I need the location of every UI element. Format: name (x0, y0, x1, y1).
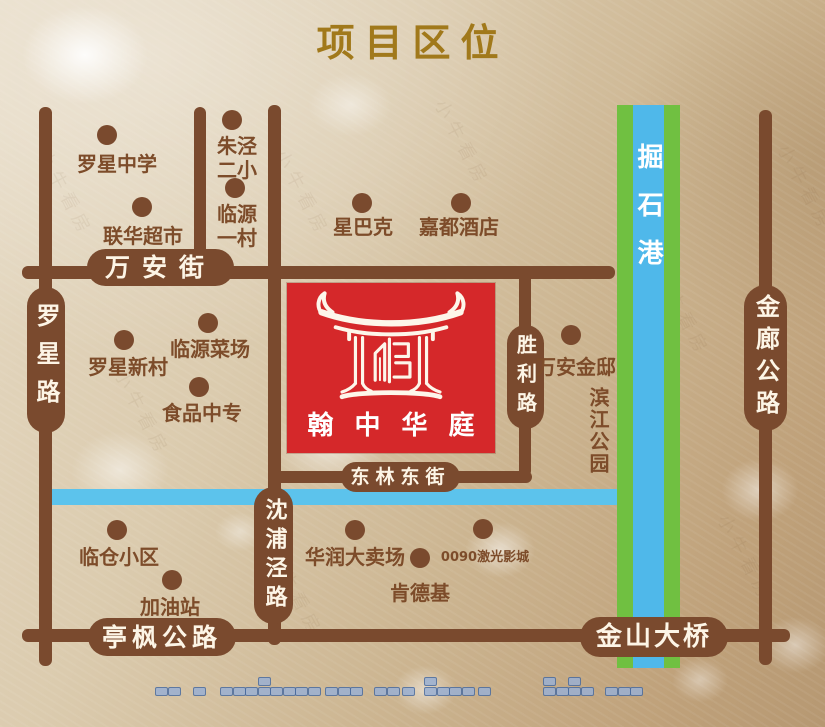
bottom-dash-raised (258, 677, 271, 686)
poi-label-food-vocational-school: 食品中专 (162, 401, 242, 425)
road-label-donglin-east-street[interactable]: 东林东街 (341, 462, 460, 492)
bottom-dash (258, 687, 271, 696)
bottom-dash (155, 687, 168, 696)
river-name-label: 掘石港 (630, 143, 667, 287)
bottom-dash (437, 687, 450, 696)
poi-dot-gas-station[interactable] (162, 570, 182, 590)
road-label-luoxing-road[interactable]: 罗星路 (27, 287, 65, 433)
poi-dot-lianhua-supermarket[interactable] (132, 197, 152, 217)
poi-dot-linyuan-village-1[interactable] (225, 178, 245, 198)
bottom-dash (233, 687, 246, 696)
bottom-dash (245, 687, 258, 696)
area-label-binjiang-park: 滨江公园 (586, 387, 610, 475)
road-label-shenpujing-road[interactable]: 沈浦泾路 (254, 487, 293, 624)
poi-dot-lincang-residence[interactable] (107, 520, 127, 540)
poi-label-linyuan-market: 临源菜场 (170, 337, 250, 361)
poi-label-huarun-hypermarket: 华润大卖场 (305, 545, 405, 569)
poi-dot-jiadu-hotel[interactable] (451, 193, 471, 213)
poi-label-zhujing-no2-primary: 朱泾 二小 (217, 134, 257, 182)
poi-label-luoxing-new-village: 罗星新村 (88, 355, 168, 379)
poi-dot-luoxing-new-village[interactable] (114, 330, 134, 350)
map-area: 翰中华庭 小牛看房小牛看房小牛看房小牛看房小牛看房小牛看房小牛看房小牛看房掘石港… (0, 0, 825, 727)
bottom-dash (462, 687, 475, 696)
poi-label-lianhua-supermarket: 联华超市 (103, 224, 183, 248)
poi-label-linyuan-village-1: 临源 一村 (217, 202, 257, 250)
poi-label-starbucks: 星巴克 (333, 215, 393, 239)
poi-dot-luoxing-middle-school[interactable] (97, 125, 117, 145)
bottom-dash (325, 687, 338, 696)
bottom-dash (295, 687, 308, 696)
poi-label-wanan-jindi: 万安金邸 (536, 355, 616, 379)
poi-dot-wanan-jindi[interactable] (561, 325, 581, 345)
poi-label-gas-station: 加油站 (140, 595, 200, 619)
poi-label-jiadu-hotel: 嘉都酒店 (419, 215, 499, 239)
road-label-wanan-street[interactable]: 万安街 (87, 249, 234, 286)
project-location-map: 项目区位 翰中华庭 小牛看房小牛看房小牛看房小牛看房小牛看房小牛看房小牛看房小牛… (0, 0, 825, 727)
bottom-dash (478, 687, 491, 696)
bottom-dash (387, 687, 400, 696)
river-water: 掘石港 (633, 105, 664, 668)
poi-label-lincang-residence: 临仓小区 (79, 545, 159, 569)
bottom-dash (338, 687, 351, 696)
project-marker[interactable]: 翰中华庭 (287, 283, 495, 453)
page-title: 项目区位 (0, 12, 825, 67)
road-label-jinlang-highway[interactable]: 金廊公路 (744, 285, 787, 431)
watermark-text: 小牛看房 (772, 140, 825, 237)
project-logo-gate-icon (312, 291, 470, 403)
canal-line (45, 489, 617, 505)
poi-dot-linyuan-market[interactable] (198, 313, 218, 333)
poi-dot-huarun-hypermarket[interactable] (345, 520, 365, 540)
bottom-dash (308, 687, 321, 696)
bottom-dash (618, 687, 631, 696)
poi-dot-zhujing-no2-primary[interactable] (222, 110, 242, 130)
poi-label-luoxing-middle-school: 罗星中学 (77, 152, 157, 176)
bottom-dash (424, 687, 437, 696)
bottom-dash-raised (543, 677, 556, 686)
poi-label-kfc: 肯德基 (390, 581, 450, 605)
bottom-dash (270, 687, 283, 696)
poi-dot-food-vocational-school[interactable] (189, 377, 209, 397)
bottom-dash (630, 687, 643, 696)
bottom-dash (402, 687, 415, 696)
watermark-text: 小牛看房 (429, 95, 497, 192)
bottom-dash-raised (424, 677, 437, 686)
bottom-dash (350, 687, 363, 696)
bottom-dash-raised (568, 677, 581, 686)
bottom-dash (168, 687, 181, 696)
poi-label-0090-laser-cinema: 0090激光影城 (441, 550, 529, 566)
bottom-dash (220, 687, 233, 696)
poi-dot-starbucks[interactable] (352, 193, 372, 213)
poi-dot-0090-laser-cinema[interactable] (473, 519, 493, 539)
bottom-dash (193, 687, 206, 696)
bottom-dash (374, 687, 387, 696)
road-label-jinshan-bridge[interactable]: 金山大桥 (580, 617, 728, 657)
poi-dot-kfc[interactable] (410, 548, 430, 568)
bottom-dash (556, 687, 569, 696)
bottom-dash (581, 687, 594, 696)
bottom-dash (543, 687, 556, 696)
bottom-dash (568, 687, 581, 696)
project-name: 翰中华庭 (307, 405, 495, 442)
bottom-dash (605, 687, 618, 696)
bottom-dash (449, 687, 462, 696)
bottom-dash (283, 687, 296, 696)
road-label-tingfeng-highway[interactable]: 亭枫公路 (88, 618, 236, 656)
river-jueshigang: 掘石港 (617, 105, 680, 668)
